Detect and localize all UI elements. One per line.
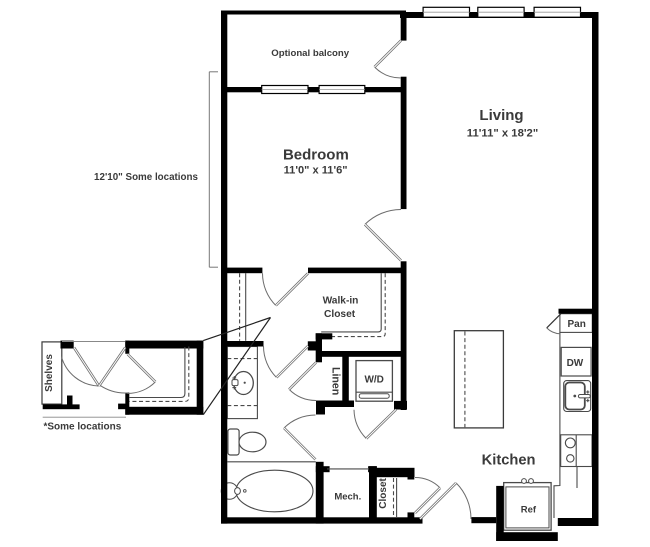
svg-text:Closet: Closet <box>324 309 356 320</box>
svg-text:Linen: Linen <box>330 367 342 395</box>
svg-text:Kitchen: Kitchen <box>482 453 536 469</box>
svg-text:Shelves: Shelves <box>44 354 55 392</box>
svg-text:11'11" x 18'2": 11'11" x 18'2" <box>467 127 538 139</box>
svg-text:DW: DW <box>567 358 584 369</box>
svg-text:Closet: Closet <box>378 477 389 508</box>
svg-text:Mech.: Mech. <box>334 492 361 503</box>
svg-text:Walk-in: Walk-in <box>323 296 359 307</box>
svg-text:Ref: Ref <box>521 505 537 516</box>
svg-text:Bedroom: Bedroom <box>283 146 349 163</box>
svg-text:11'0" x 11'6": 11'0" x 11'6" <box>284 165 348 177</box>
svg-text:Optional balcony: Optional balcony <box>271 48 349 59</box>
svg-text:*Some locations: *Some locations <box>44 422 122 433</box>
svg-text:Pan: Pan <box>568 319 586 330</box>
svg-text:12'10" Some locations: 12'10" Some locations <box>94 172 198 183</box>
svg-text:Living: Living <box>479 107 523 124</box>
svg-text:W/D: W/D <box>364 375 383 386</box>
